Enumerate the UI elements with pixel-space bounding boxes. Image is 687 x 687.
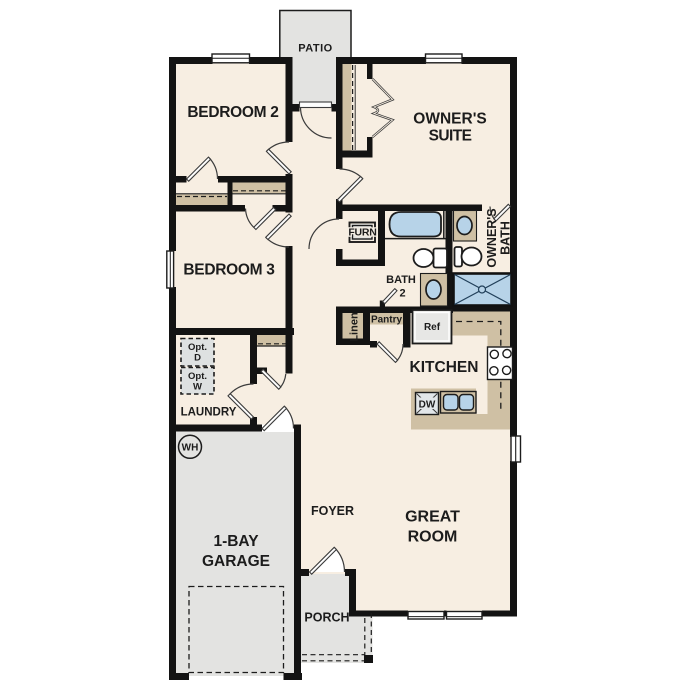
svg-text:Ref: Ref xyxy=(424,322,441,333)
svg-text:KITCHEN: KITCHEN xyxy=(410,359,479,376)
svg-text:BEDROOM 2: BEDROOM 2 xyxy=(187,104,278,121)
svg-text:BATH: BATH xyxy=(386,274,416,286)
svg-text:PORCH: PORCH xyxy=(304,611,349,625)
svg-text:FOYER: FOYER xyxy=(311,504,354,518)
svg-text:WH: WH xyxy=(182,442,199,453)
svg-text:LAUNDRY: LAUNDRY xyxy=(181,407,237,419)
svg-text:OWNER'S: OWNER'S xyxy=(485,208,499,267)
svg-text:OWNER'S: OWNER'S xyxy=(413,111,486,128)
svg-text:FURN: FURN xyxy=(348,226,376,238)
svg-text:Linen: Linen xyxy=(349,312,361,342)
svg-text:2: 2 xyxy=(399,288,405,300)
svg-text:BEDROOM 3: BEDROOM 3 xyxy=(183,262,275,279)
svg-text:Opt.: Opt. xyxy=(188,342,207,353)
svg-text:1-BAY: 1-BAY xyxy=(213,533,259,550)
svg-text:DW: DW xyxy=(419,400,436,411)
svg-text:BATH: BATH xyxy=(499,221,513,255)
svg-text:GREAT: GREAT xyxy=(405,509,460,526)
svg-text:GARAGE: GARAGE xyxy=(202,553,270,570)
svg-text:ROOM: ROOM xyxy=(408,529,458,546)
svg-text:W: W xyxy=(193,382,202,393)
svg-text:Opt.: Opt. xyxy=(188,371,207,382)
svg-text:SUITE: SUITE xyxy=(429,128,472,145)
svg-text:Pantry: Pantry xyxy=(371,315,403,326)
svg-text:D: D xyxy=(194,353,201,364)
svg-text:PATIO: PATIO xyxy=(298,43,332,55)
